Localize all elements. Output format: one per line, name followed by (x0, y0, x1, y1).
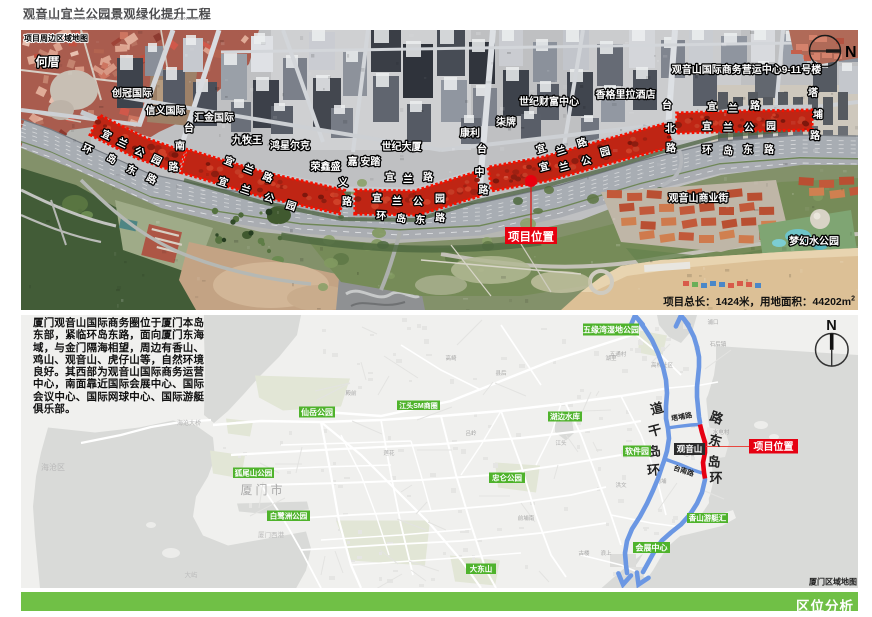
svg-text:厦门市: 厦门市 (240, 482, 285, 497)
svg-text:路: 路 (423, 171, 434, 184)
svg-text:江头: 江头 (555, 439, 567, 447)
svg-text:莲花: 莲花 (383, 449, 395, 457)
svg-text:观音山商业街: 观音山商业街 (669, 192, 729, 205)
svg-text:路: 路 (435, 211, 447, 225)
svg-text:大东山: 大东山 (470, 563, 493, 573)
svg-text:路: 路 (666, 142, 677, 155)
svg-text:兰: 兰 (723, 121, 733, 134)
svg-text:荣鑫盛: 荣鑫盛 (310, 160, 341, 173)
svg-text:东: 东 (415, 213, 426, 227)
svg-text:仙岳公园: 仙岳公园 (301, 406, 333, 416)
svg-text:宜: 宜 (707, 100, 717, 113)
svg-text:汇金国际: 汇金国际 (194, 111, 234, 124)
svg-text:县后: 县后 (495, 369, 507, 377)
svg-text:N: N (826, 318, 836, 334)
svg-text:会展中心: 会展中心 (636, 542, 668, 552)
svg-text:吕岭: 吕岭 (465, 429, 477, 437)
svg-text:厦门区域地图: 厦门区域地图 (809, 576, 857, 586)
svg-text:宜: 宜 (372, 192, 382, 205)
svg-text:软件园: 软件园 (625, 445, 649, 455)
svg-text:台: 台 (662, 99, 672, 112)
svg-text:大屿: 大屿 (185, 570, 199, 579)
svg-text:九牧王: 九牧王 (231, 134, 262, 147)
svg-text:石后镇: 石后镇 (710, 340, 727, 348)
svg-text:洪文: 洪文 (615, 481, 627, 489)
svg-text:嘉 安踏: 嘉 安踏 (347, 155, 382, 168)
svg-text:世纪财富中心: 世纪财富中心 (519, 95, 579, 108)
svg-text:五缘湾湿地公园: 五缘湾湿地公园 (583, 324, 639, 334)
svg-text:海沧区: 海沧区 (41, 462, 65, 472)
svg-text:环: 环 (646, 461, 660, 477)
svg-text:公: 公 (413, 196, 423, 208)
svg-text:北: 北 (665, 122, 675, 135)
svg-text:园: 园 (766, 121, 776, 133)
svg-text:岛: 岛 (396, 212, 407, 226)
svg-text:湖边水库: 湖边水库 (550, 411, 580, 421)
svg-text:兰: 兰 (403, 173, 413, 186)
svg-text:台: 台 (184, 122, 194, 135)
svg-text:环: 环 (709, 470, 722, 485)
svg-text:路: 路 (342, 195, 353, 208)
svg-text:湖里: 湖里 (605, 354, 617, 362)
svg-text:环: 环 (702, 144, 712, 156)
svg-text:忠仑公园: 忠仑公园 (492, 472, 522, 482)
svg-text:浦口: 浦口 (707, 318, 718, 326)
svg-text:香山游艇汇: 香山游艇汇 (688, 512, 727, 522)
svg-text:宜: 宜 (702, 120, 712, 133)
svg-text:狐尾山公园: 狐尾山公园 (235, 467, 273, 477)
svg-text:兰: 兰 (728, 102, 738, 115)
svg-text:高崎: 高崎 (445, 354, 457, 362)
svg-text:创冠国际: 创冠国际 (111, 87, 152, 100)
svg-text:厦门西港: 厦门西港 (258, 530, 285, 539)
svg-text:香格里拉酒店: 香格里拉酒店 (596, 88, 656, 101)
svg-text:项目位置: 项目位置 (508, 230, 554, 244)
svg-text:埔: 埔 (813, 108, 823, 121)
svg-text:环: 环 (376, 210, 387, 223)
svg-text:江头SM商圈: 江头SM商圈 (399, 400, 438, 409)
svg-text:浪上: 浪上 (600, 549, 612, 557)
svg-text:塔: 塔 (808, 86, 819, 99)
svg-text:观音山国际商务营运中心9-11号楼: 观音山国际商务营运中心9-11号楼 (672, 63, 821, 76)
svg-text:世纪大厦: 世纪大厦 (382, 140, 423, 153)
svg-text:义: 义 (338, 176, 349, 189)
svg-text:柒牌: 柒牌 (495, 116, 516, 129)
svg-text:鸿星尔克: 鸿星尔克 (270, 139, 310, 152)
svg-text:路: 路 (750, 99, 761, 112)
svg-text:路: 路 (479, 184, 490, 197)
svg-text:前埔南: 前埔南 (518, 514, 535, 522)
svg-text:公: 公 (744, 122, 754, 134)
svg-text:兰: 兰 (392, 195, 402, 208)
svg-text:路: 路 (764, 143, 775, 156)
svg-text:海沧大桥: 海沧大桥 (177, 419, 201, 427)
svg-text:殿前: 殿前 (345, 389, 357, 397)
svg-text:南: 南 (175, 140, 185, 153)
svg-text:何厝: 何厝 (35, 54, 59, 69)
svg-text:中: 中 (475, 166, 485, 179)
svg-text:园: 园 (435, 193, 445, 205)
svg-text:岛: 岛 (707, 454, 720, 469)
svg-text:台: 台 (477, 143, 487, 156)
svg-text:路: 路 (810, 129, 821, 142)
svg-text:古楼: 古楼 (578, 549, 590, 557)
svg-text:项目位置: 项目位置 (754, 440, 794, 453)
svg-text:观音山: 观音山 (677, 444, 703, 454)
svg-text:信义国际: 信义国际 (146, 104, 186, 117)
svg-text:梦幻水公园: 梦幻水公园 (789, 235, 839, 248)
svg-text:项目周边区域地图: 项目周边区域地图 (24, 33, 88, 43)
svg-text:东: 东 (743, 143, 753, 156)
svg-text:宜: 宜 (385, 171, 395, 184)
svg-text:岛: 岛 (723, 145, 733, 158)
svg-text:路: 路 (169, 161, 180, 174)
svg-text:N: N (845, 44, 857, 61)
svg-text:康利: 康利 (460, 127, 480, 140)
svg-text:白鹭洲公园: 白鹭洲公园 (270, 510, 308, 520)
